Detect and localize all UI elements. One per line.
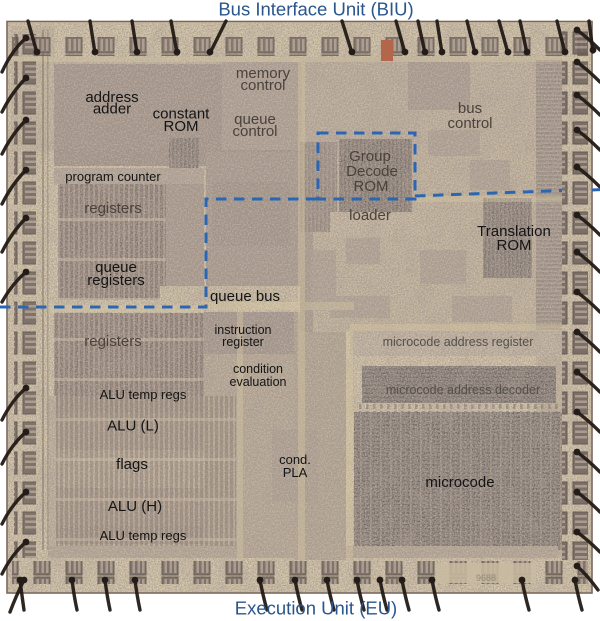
svg-text:adder: adder	[93, 101, 131, 118]
svg-text:registers: registers	[84, 333, 142, 350]
svg-text:registers: registers	[87, 272, 145, 289]
svg-text:registers: registers	[84, 200, 142, 217]
svg-text:loader: loader	[349, 207, 391, 224]
svg-text:9688: 9688	[476, 573, 496, 583]
svg-text:control: control	[447, 115, 492, 132]
svg-text:evaluation: evaluation	[230, 375, 287, 389]
svg-text:condition: condition	[233, 362, 283, 376]
svg-text:control: control	[240, 77, 285, 94]
svg-text:ROM: ROM	[354, 178, 389, 195]
svg-text:control: control	[232, 123, 277, 140]
svg-text:register: register	[222, 335, 264, 349]
svg-text:microcode: microcode	[425, 474, 494, 491]
svg-text:ROM: ROM	[164, 118, 199, 135]
svg-text:microcode address decoder: microcode address decoder	[386, 383, 540, 397]
svg-text:ALU temp regs: ALU temp regs	[100, 387, 187, 402]
svg-text:PLA: PLA	[283, 465, 308, 480]
svg-text:queue bus: queue bus	[210, 288, 280, 305]
svg-text:flags: flags	[116, 456, 148, 473]
svg-text:ALU (H): ALU (H)	[108, 498, 162, 515]
svg-text:ALU temp regs: ALU temp regs	[100, 528, 187, 543]
svg-text:microcode address register: microcode address register	[383, 335, 534, 349]
svg-text:Execution Unit (EU): Execution Unit (EU)	[235, 598, 397, 619]
svg-text:ROM: ROM	[497, 237, 532, 254]
svg-text:program counter: program counter	[65, 169, 161, 184]
svg-text:ALU (L): ALU (L)	[107, 418, 159, 435]
svg-text:Bus Interface Unit (BIU): Bus Interface Unit (BIU)	[218, 0, 413, 20]
